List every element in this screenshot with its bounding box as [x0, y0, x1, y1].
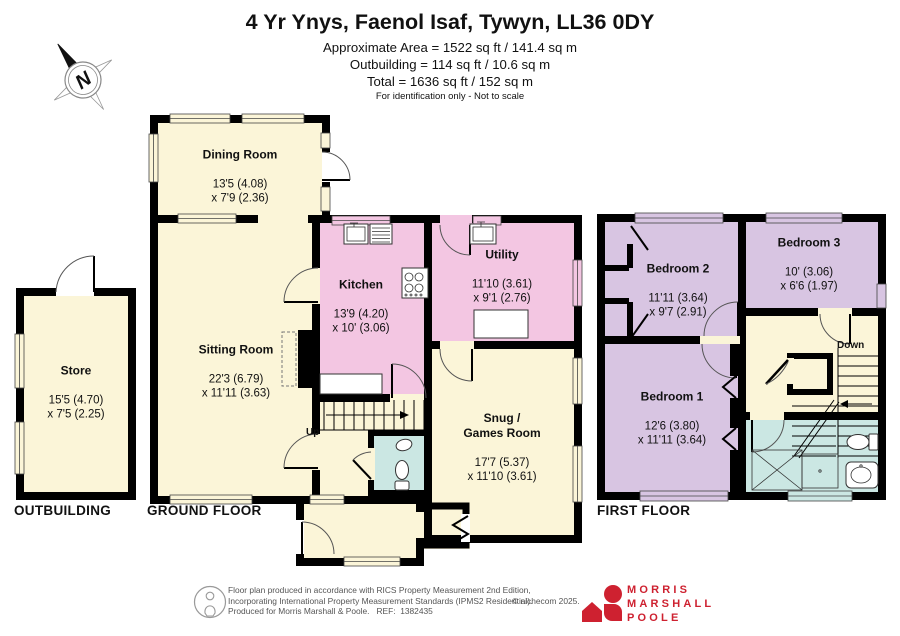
- room-bedroom2: Bedroom 2 11'11 (3.64) x 9'7 (2.91): [647, 248, 710, 335]
- room-dims: 11'10 (3.61) x 9'1 (2.76): [472, 277, 532, 306]
- stairs-up-label: Up: [306, 427, 319, 438]
- room-name: Utility: [472, 248, 532, 263]
- footer-line-3: Produced for Morris Marshall & Poole. RE…: [228, 606, 433, 616]
- room-dims: 13'9 (4.20) x 10' (3.06): [332, 307, 389, 336]
- room-name: Sitting Room: [199, 343, 274, 358]
- room-utility: Utility 11'10 (3.61) x 9'1 (2.76): [472, 234, 532, 321]
- first-floor-label: FIRST FLOOR: [597, 503, 690, 518]
- outbuilding-label: OUTBUILDING: [14, 503, 111, 518]
- approximate-area-line: Approximate Area = 1522 sq ft / 141.4 sq…: [0, 40, 900, 55]
- logo-word-morris: MORRIS: [627, 585, 690, 596]
- room-bedroom1: Bedroom 1 12'6 (3.80) x 11'11 (3.64): [638, 376, 706, 463]
- room-sitting: Sitting Room 22'3 (6.79) x 11'11 (3.63): [199, 329, 274, 416]
- room-kitchen: Kitchen 13'9 (4.20) x 10' (3.06): [332, 264, 389, 351]
- footer-line-2: Incorporating International Property Mea…: [228, 596, 532, 606]
- footer-copyright: © nichecom 2025.: [512, 596, 580, 606]
- room-name: Bedroom 3: [778, 236, 841, 251]
- room-name: Dining Room: [203, 148, 278, 163]
- room-name: Snug / Games Room: [463, 411, 540, 441]
- room-name: Bedroom 2: [647, 262, 710, 277]
- room-dims: 13'5 (4.08) x 7'9 (2.36): [203, 177, 278, 206]
- floorplan-page: N 4 Yr Ynys, Faenol Isaf, Tywyn, LL36 0D…: [0, 0, 900, 636]
- room-dims: 12'6 (3.80) x 11'11 (3.64): [638, 419, 706, 448]
- logo-word-marshall: MARSHALL: [627, 599, 714, 610]
- room-dims: 11'11 (3.64) x 9'7 (2.91): [647, 291, 710, 320]
- logo-word-poole: POOLE: [627, 613, 682, 624]
- mmp-logo-icon: [582, 585, 622, 622]
- room-name: Store: [47, 364, 104, 379]
- ground-floor-label: GROUND FLOOR: [147, 503, 262, 518]
- room-dims: 22'3 (6.79) x 11'11 (3.63): [199, 372, 274, 401]
- footer-line-1: Floor plan produced in accordance with R…: [228, 585, 531, 595]
- page-title: 4 Yr Ynys, Faenol Isaf, Tywyn, LL36 0DY: [0, 10, 900, 35]
- room-name: Kitchen: [332, 278, 389, 293]
- stairs-down-label: Down: [837, 340, 864, 351]
- room-store: Store 15'5 (4.70) x 7'5 (2.25): [47, 350, 104, 437]
- room-name: Bedroom 1: [638, 390, 706, 405]
- room-dims: 10' (3.06) x 6'6 (1.97): [778, 265, 841, 294]
- room-dims: 17'7 (5.37) x 11'10 (3.61): [463, 456, 540, 485]
- room-bedroom3: Bedroom 3 10' (3.06) x 6'6 (1.97): [778, 222, 841, 309]
- room-dining: Dining Room 13'5 (4.08) x 7'9 (2.36): [203, 134, 278, 221]
- room-snug: Snug / Games Room 17'7 (5.37) x 11'10 (3…: [463, 397, 540, 499]
- identification-disclaimer: For identification only - Not to scale: [0, 91, 900, 102]
- outbuilding-area-line: Outbuilding = 114 sq ft / 10.6 sq m: [0, 57, 900, 72]
- measurer-icon: [195, 587, 226, 618]
- room-dims: 15'5 (4.70) x 7'5 (2.25): [47, 393, 104, 422]
- total-area-line: Total = 1636 sq ft / 152 sq m: [0, 74, 900, 89]
